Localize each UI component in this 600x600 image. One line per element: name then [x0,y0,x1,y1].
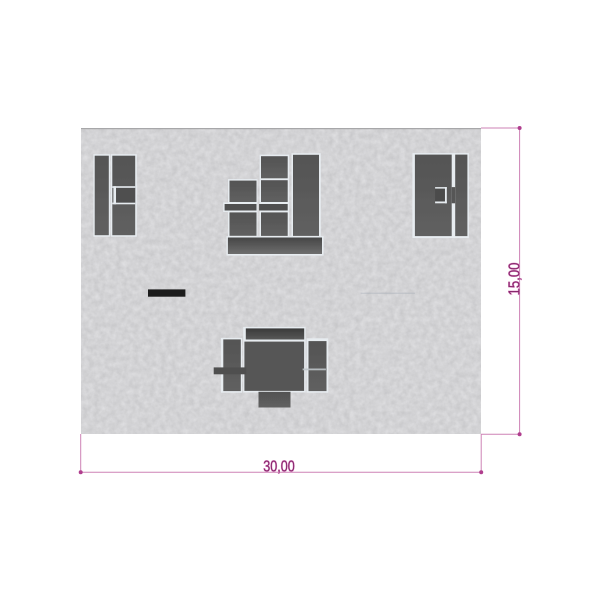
svg-text:15,00: 15,00 [506,262,523,295]
svg-text:30,00: 30,00 [263,459,295,476]
